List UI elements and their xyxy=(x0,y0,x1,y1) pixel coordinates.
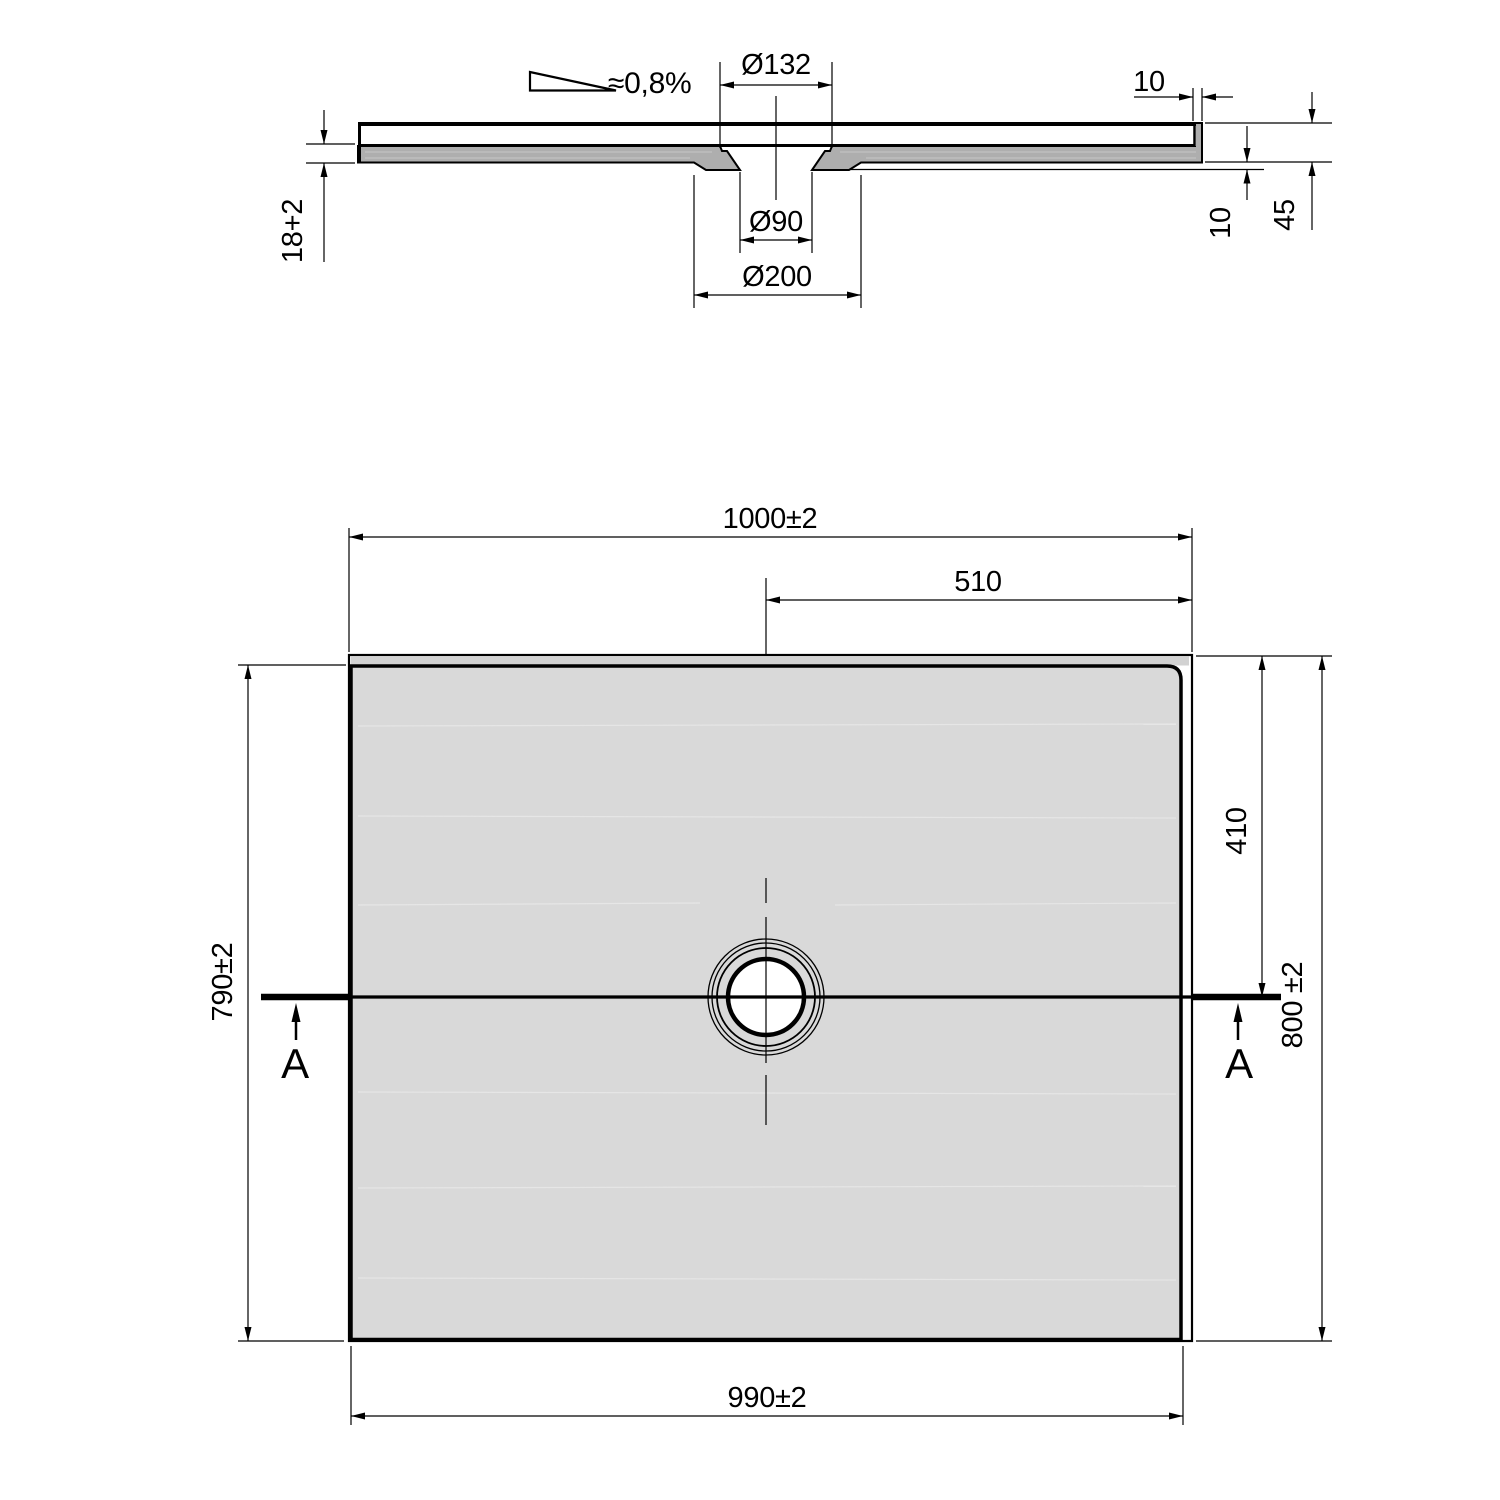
arrowhead xyxy=(1179,94,1193,101)
arrowhead xyxy=(1244,148,1251,162)
outlet-dia-label: Ø90 xyxy=(749,206,803,238)
cut-label-left: A xyxy=(281,1040,309,1087)
arrowhead xyxy=(766,597,780,604)
arrowhead xyxy=(1169,1413,1183,1420)
body-width-label: 990±2 xyxy=(728,1382,807,1414)
top-recess-dia-label: Ø132 xyxy=(741,49,811,81)
overall-width-label: 1000±2 xyxy=(723,503,818,535)
body-depth-label: 790±2 xyxy=(207,943,239,1022)
arrowhead xyxy=(1319,656,1326,670)
arrowhead xyxy=(1178,534,1192,541)
arrowhead xyxy=(245,1327,252,1341)
arrowhead xyxy=(321,130,328,144)
dim-sheet-thickness xyxy=(306,110,355,262)
slope-label: ≈0,8% xyxy=(608,67,691,100)
plan-top-lip-strip xyxy=(351,657,1189,666)
arrowhead xyxy=(1178,597,1192,604)
dim-body-depth xyxy=(238,665,346,1341)
arrowhead xyxy=(1202,94,1216,101)
sheet-thickness-label: 18+2 xyxy=(277,199,309,263)
underside-gap-label: 10 xyxy=(1205,207,1237,239)
section-top-shell xyxy=(360,123,1196,146)
edge-height-label: 45 xyxy=(1269,199,1301,231)
technical-drawing-page: ≈0,8% Ø132 10 18+2 xyxy=(0,0,1500,1500)
arrowhead xyxy=(1309,109,1316,123)
cut-label-right: A xyxy=(1225,1040,1253,1087)
section-cut-marker-right: A xyxy=(1225,1003,1253,1087)
slope-icon xyxy=(530,72,616,91)
arrowhead xyxy=(1259,656,1266,670)
arrowhead xyxy=(847,292,861,299)
drain-offset-right-label: 510 xyxy=(954,566,1002,598)
overall-depth-label: 800 ±2 xyxy=(1277,962,1309,1049)
section-cut-marker-left: A xyxy=(281,1003,309,1087)
arrowhead xyxy=(349,534,363,541)
arrowhead xyxy=(694,292,708,299)
technical-drawing: ≈0,8% Ø132 10 18+2 xyxy=(0,0,1500,1500)
arrowhead xyxy=(1244,170,1251,184)
arrowhead xyxy=(245,665,252,679)
arrowhead xyxy=(1309,162,1316,176)
plan-view: A A 1000±2 510 790± xyxy=(207,503,1332,1425)
section-arrow-icon xyxy=(292,1003,301,1022)
dim-overall-width xyxy=(349,528,1192,652)
arrowhead xyxy=(720,82,734,89)
dim-drain-offset-top xyxy=(1196,656,1332,997)
boss-dia-label: Ø200 xyxy=(742,261,812,293)
arrowhead xyxy=(321,163,328,177)
section-view: ≈0,8% Ø132 10 18+2 xyxy=(277,49,1332,308)
arrowhead xyxy=(818,82,832,89)
arrowhead xyxy=(1319,1327,1326,1341)
section-arrow-icon xyxy=(1234,1003,1243,1022)
drain-offset-top-label: 410 xyxy=(1221,807,1253,855)
lip-width-label: 10 xyxy=(1133,66,1165,98)
arrowhead xyxy=(351,1413,365,1420)
